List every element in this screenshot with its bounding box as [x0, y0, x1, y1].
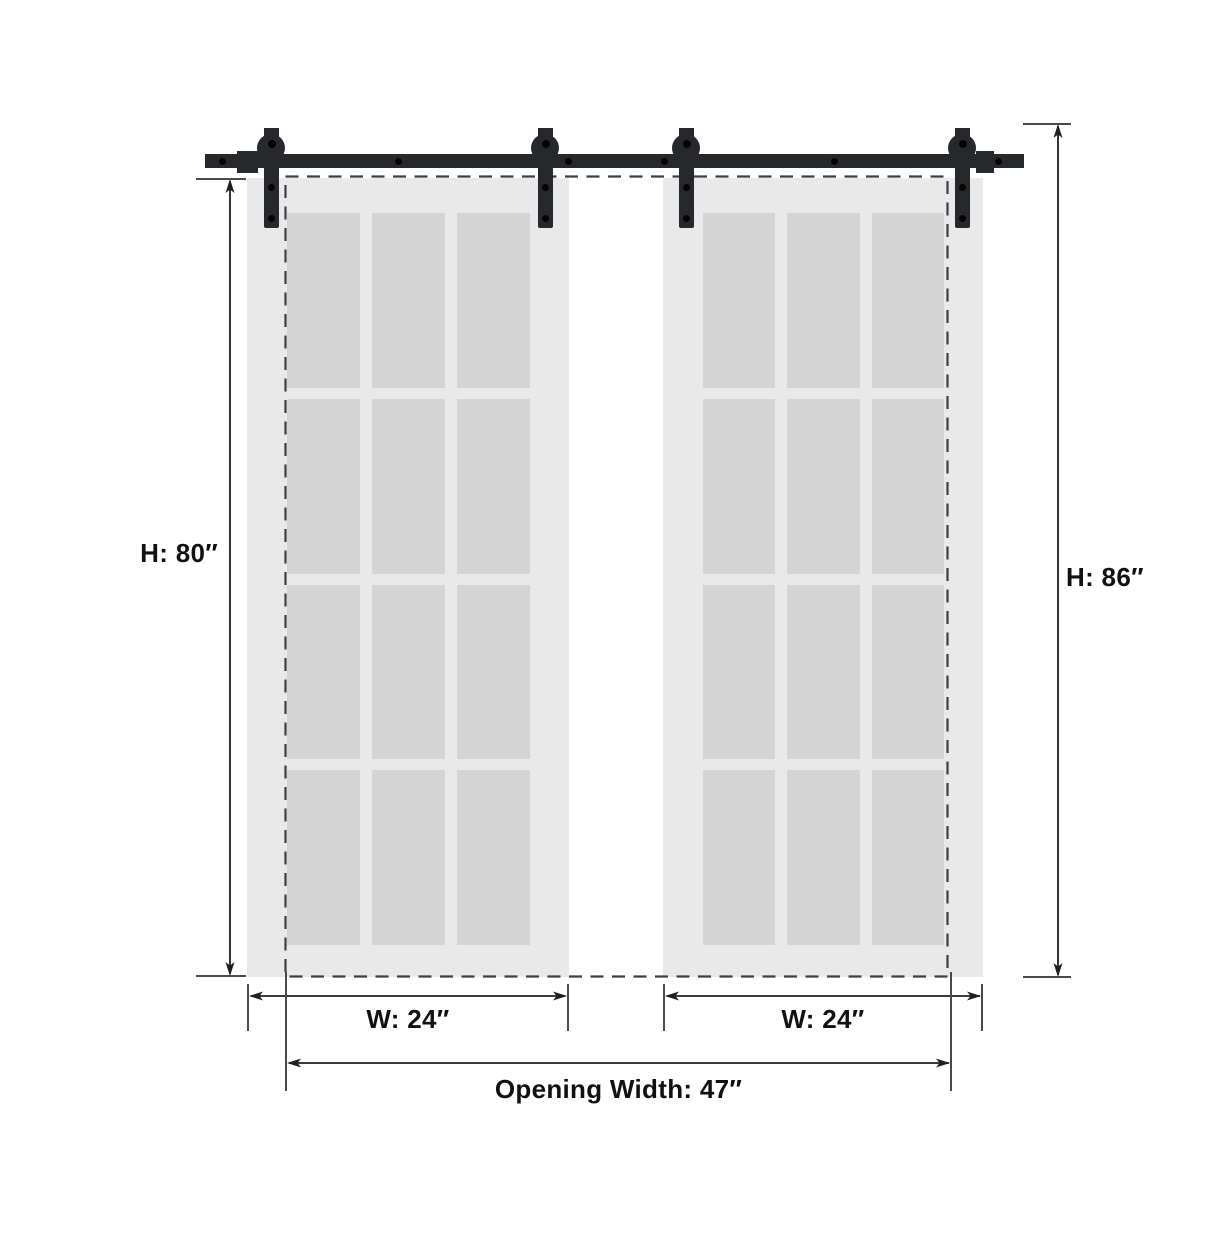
strap-bolt [683, 184, 690, 191]
opening-width-label: Opening Width: 47″ [286, 1074, 951, 1104]
strap-bolt [542, 215, 549, 222]
rail-screw [661, 158, 668, 165]
rail-screw [831, 158, 838, 165]
strap-bolt [268, 184, 275, 191]
strap-bolt [268, 215, 275, 222]
rail-screw [995, 158, 1002, 165]
track-rail [205, 154, 1024, 168]
rail-screw [219, 158, 226, 165]
track-end-bracket-left [237, 151, 258, 173]
rail-screw [565, 158, 572, 165]
rail-screw [395, 158, 402, 165]
left-door-width-label: W: 24″ [248, 1004, 568, 1034]
overall-height-label: H: 86″ [1066, 562, 1217, 592]
wheel-hub-bolt [542, 140, 550, 148]
double-barn-door-dimension-diagram: H: 80″ H: 86″ W: 24″ W: 24″ Opening Widt… [0, 0, 1217, 1254]
wheel-hub-bolt [268, 140, 276, 148]
track-end-bracket-right [976, 151, 994, 173]
strap-bolt [683, 215, 690, 222]
door-height-label: H: 80″ [58, 538, 218, 568]
opening-dashed-outline [286, 177, 948, 977]
strap-bolt [542, 184, 549, 191]
dimension-overlay [0, 0, 1217, 1254]
strap-bolt [959, 215, 966, 222]
wheel-hub-bolt [959, 140, 967, 148]
wheel-hub-bolt [683, 140, 691, 148]
right-door-width-label: W: 24″ [663, 1004, 983, 1034]
strap-bolt [959, 184, 966, 191]
